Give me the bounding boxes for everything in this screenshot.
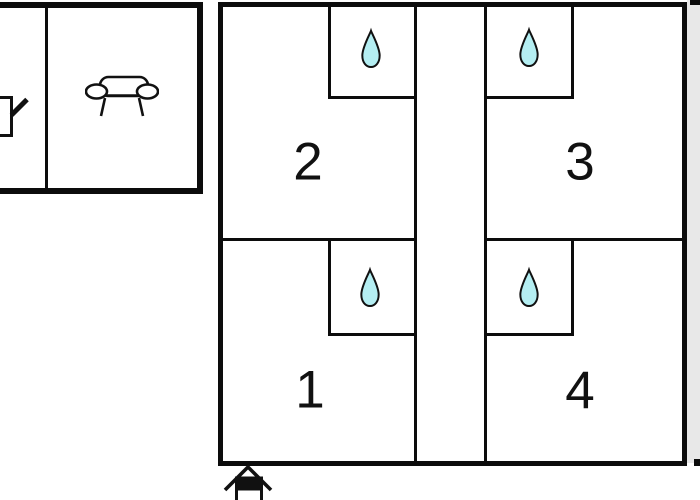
annex-inner-wall (45, 8, 48, 188)
sofa-icon (85, 74, 159, 118)
water-drop-icon (516, 26, 542, 70)
floor-plan-canvas: 2 3 1 4 (0, 0, 700, 500)
annex-building (0, 2, 203, 194)
main-building: 2 3 1 4 (218, 2, 687, 466)
bottom-right-wall-fragment (694, 459, 700, 466)
water-drop-icon (357, 266, 383, 310)
corridor-left-wall (414, 7, 417, 461)
room-3-label: 3 (565, 136, 594, 189)
partial-furniture-icon (0, 93, 39, 143)
entrance-icon (222, 462, 274, 500)
room-2-label: 2 (293, 136, 322, 189)
room-4-label: 4 (565, 365, 594, 418)
water-drop-icon (358, 27, 384, 71)
water-drop-icon (516, 266, 542, 310)
room-1-label: 1 (295, 364, 324, 417)
right-margin-strip (687, 0, 700, 463)
top-right-wall-fragment (690, 0, 700, 5)
